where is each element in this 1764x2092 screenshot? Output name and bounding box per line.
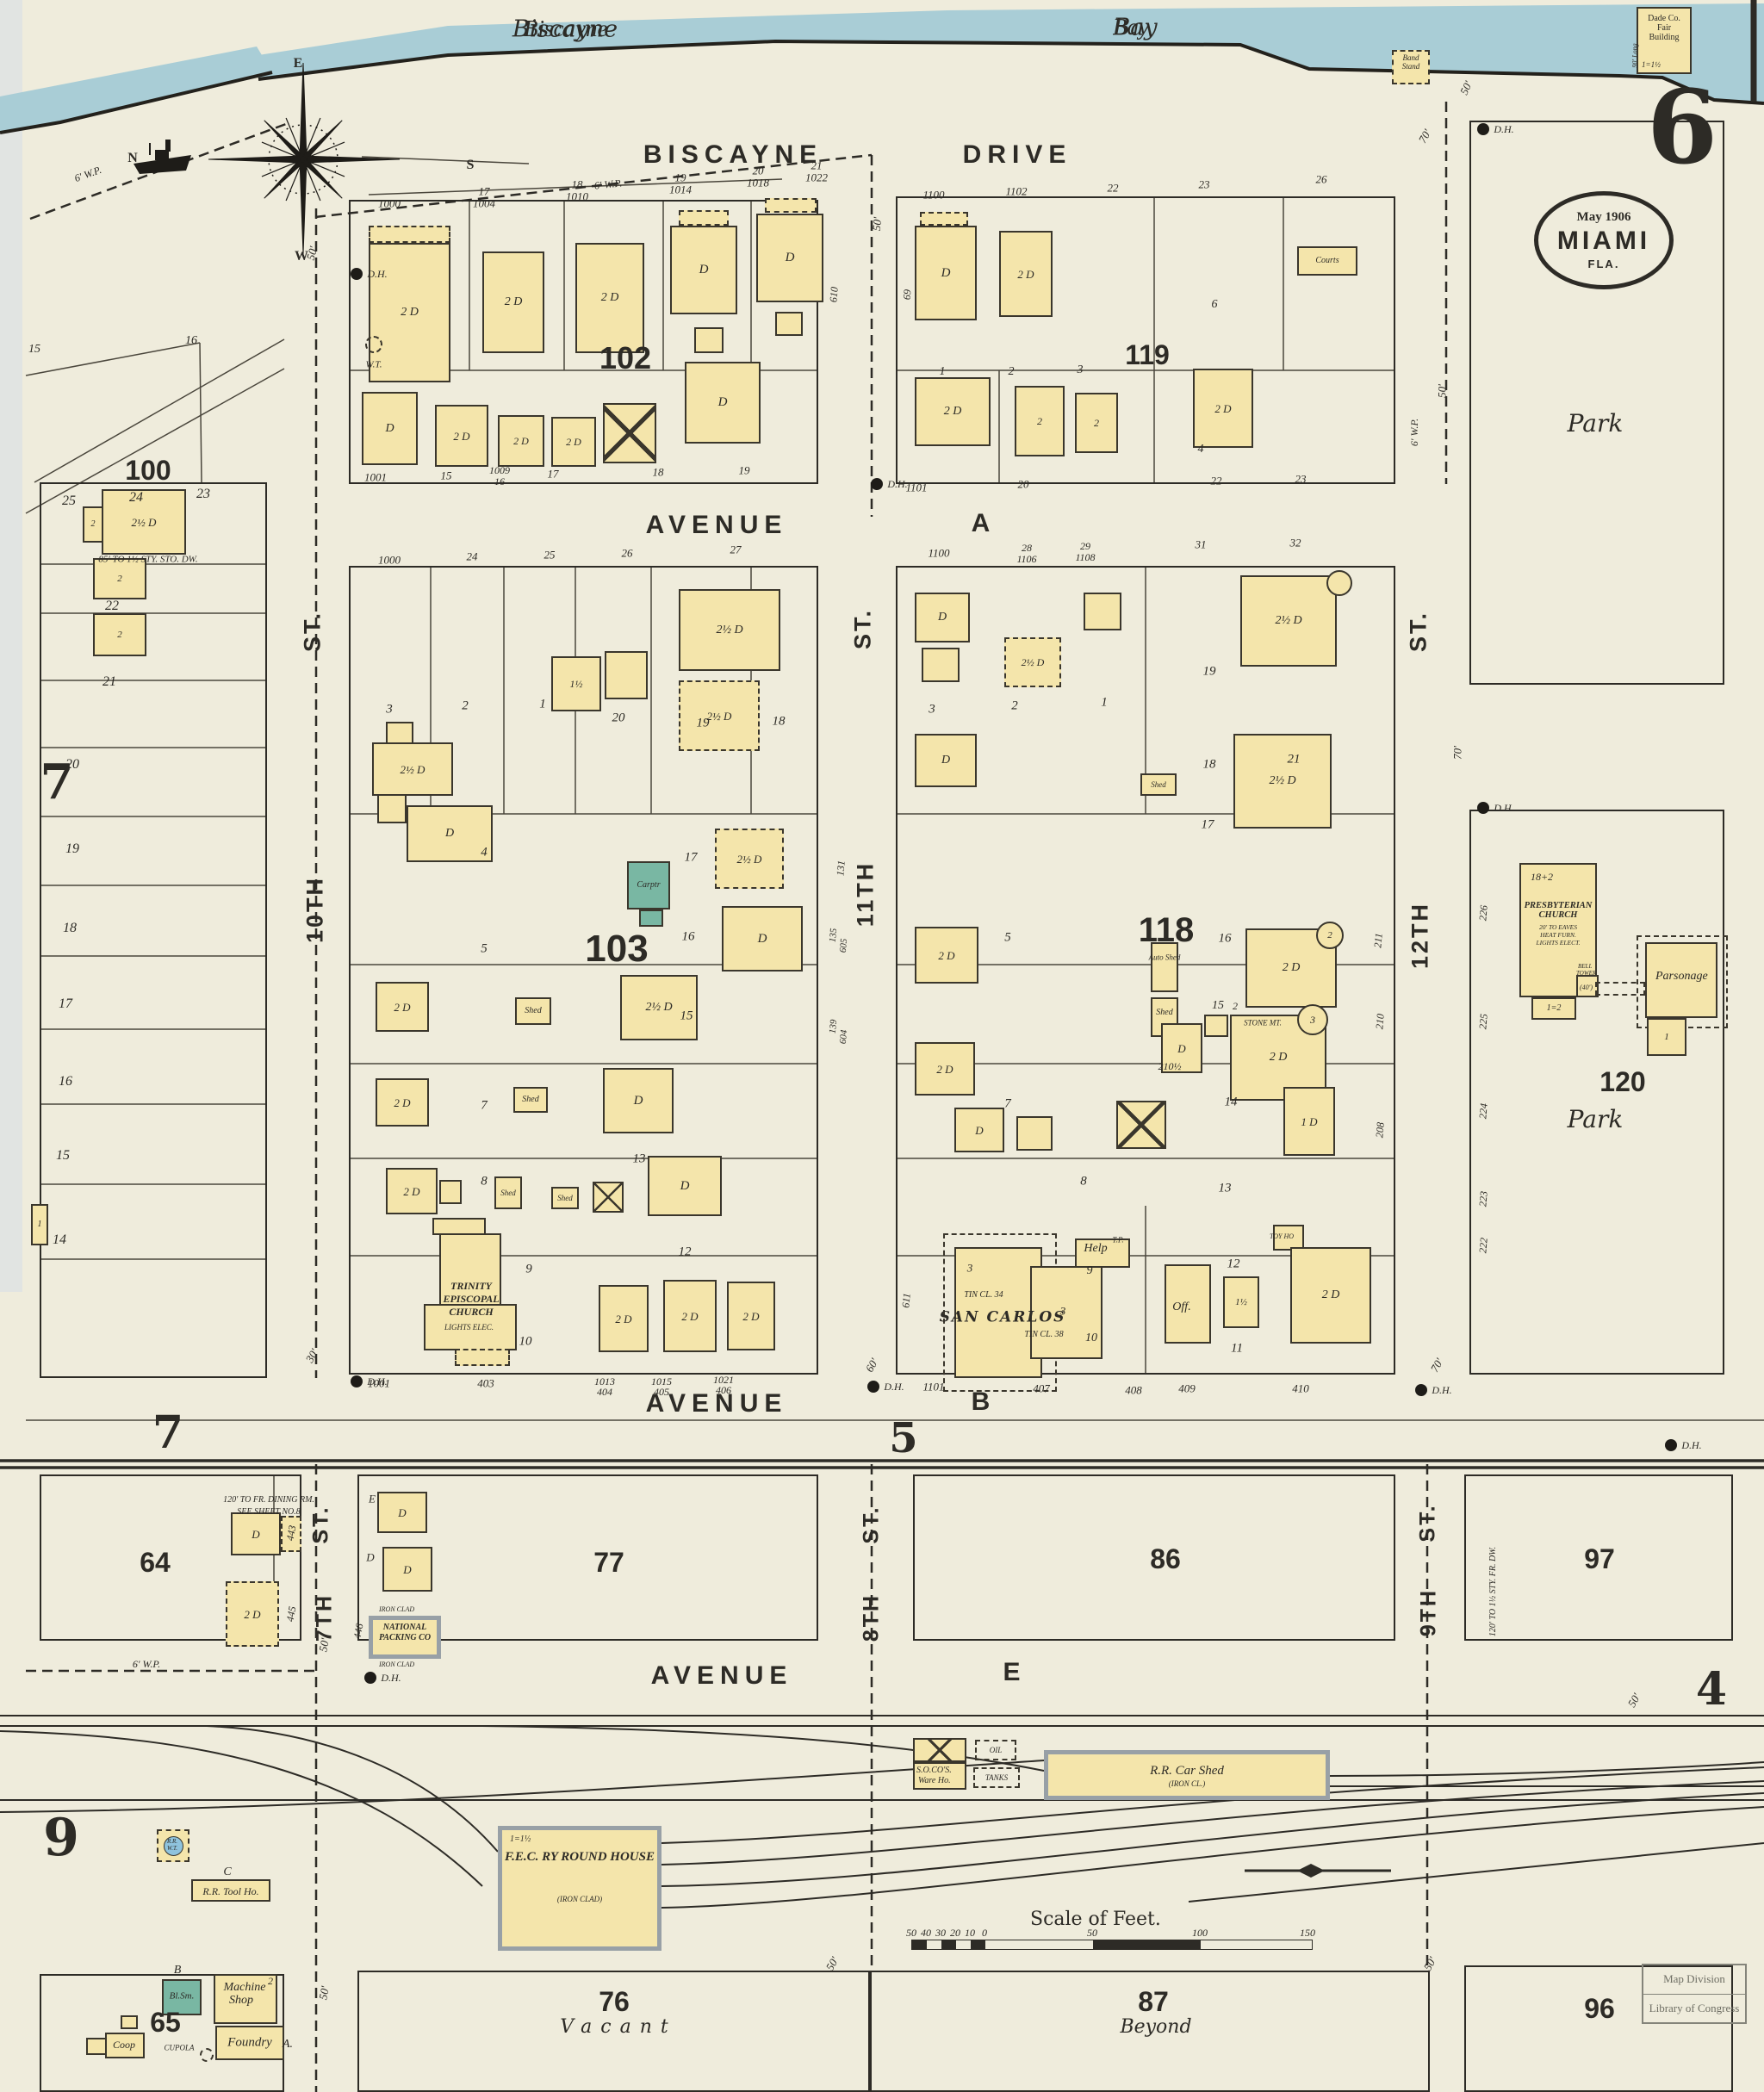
map-label: 15: [441, 470, 452, 481]
building: D: [722, 906, 803, 972]
building: [639, 909, 663, 927]
building: 2½ D: [1233, 734, 1332, 829]
trinity-lights-note: LIGHTS ELEC.: [444, 1323, 494, 1332]
map-label: 70': [1452, 746, 1463, 760]
building: Shed: [1140, 773, 1177, 796]
map-label: W.T.: [366, 361, 382, 370]
building-label: Carptr: [637, 881, 660, 890]
hydrant-marker: [351, 268, 363, 280]
building-label: 2½ D: [132, 517, 157, 528]
building: [200, 2048, 214, 2062]
map-label: 10TH: [304, 876, 327, 943]
map-label: 7: [1004, 1098, 1011, 1111]
building-label: 2½ D: [716, 624, 742, 636]
building-label: 2 D: [1270, 1052, 1288, 1064]
map-label: 12: [679, 1246, 692, 1259]
presbyterian-church-label: PRESBYTERIAN CHURCH 20' TO EAVES HEAT FU…: [1519, 901, 1597, 947]
map-label: 20: [612, 712, 625, 725]
round-house-label: F.E.C. RY ROUND HOUSE: [502, 1850, 657, 1865]
building: Shed: [551, 1187, 579, 1209]
map-label: 7TH: [314, 1593, 336, 1642]
map-label: 26: [1316, 174, 1327, 185]
map-label: 23: [1295, 474, 1307, 485]
building-label: 1: [1664, 1033, 1669, 1042]
map-label: 69: [901, 289, 912, 300]
building: D: [915, 734, 977, 787]
building: Carptr: [627, 861, 670, 909]
fair-building-label: Dade Co. Fair Building: [1637, 14, 1692, 42]
map-label: 12TH: [1409, 902, 1432, 969]
building: 2 D: [376, 1078, 429, 1127]
map-label: 20: [753, 165, 764, 177]
round-house-stories: 1=1½: [510, 1834, 531, 1844]
building-label: 2½ D: [1022, 657, 1045, 667]
building-label: 2 D: [1283, 962, 1301, 974]
map-label: TIN CL. 34: [964, 1291, 1003, 1300]
building: 2: [1075, 393, 1118, 453]
map-label: 604: [839, 1029, 849, 1044]
map-label: 25: [544, 549, 556, 561]
map-label: 1106: [1016, 554, 1036, 564]
map-label: 19: [65, 842, 79, 856]
scale-segment: [927, 1940, 941, 1949]
map-label: 605: [839, 938, 849, 953]
map-label: 1000: [378, 555, 401, 566]
map-label: 20: [65, 758, 79, 772]
scale-segment: [971, 1940, 985, 1949]
building: D: [915, 593, 970, 642]
building: [593, 1182, 624, 1213]
scale-segment: [956, 1940, 971, 1949]
map-label: ST.: [301, 611, 325, 652]
building: 2½ D: [1004, 637, 1061, 687]
map-label: 445: [285, 1605, 298, 1623]
building: 2 D: [999, 231, 1053, 317]
building: D: [915, 226, 977, 320]
map-label: 12: [1227, 1258, 1240, 1271]
map-label: 14: [53, 1233, 66, 1247]
track-crossing-icon: [1297, 1864, 1325, 1878]
building: [922, 648, 960, 682]
map-label: 5: [1004, 932, 1011, 945]
building: [455, 1349, 510, 1366]
map-label: AVENUE: [651, 1663, 793, 1689]
map-label: 50': [871, 217, 883, 232]
map-label: 3: [929, 704, 935, 717]
map-label: 22: [105, 599, 119, 613]
building-label: 1: [38, 1220, 42, 1229]
map-label: 5: [481, 943, 488, 956]
map-label: 87: [1138, 1988, 1169, 2015]
map-label: 25: [62, 494, 76, 508]
map-label: 17: [685, 852, 698, 865]
building: 2½ D: [679, 589, 780, 671]
map-label: 410: [1292, 1383, 1309, 1394]
map-label: E: [294, 57, 303, 71]
building-label: 2 D: [566, 437, 581, 447]
map-label: 7: [481, 1100, 488, 1113]
oval-city: MIAMI: [1557, 227, 1650, 256]
building-label: 2 D: [401, 307, 419, 319]
map-label: 50': [317, 1637, 331, 1653]
map-label: 610: [828, 287, 840, 303]
building: D: [407, 805, 493, 862]
map-label: 3: [967, 1263, 973, 1274]
packing-label-1: NATIONAL: [369, 1623, 441, 1632]
map-label: B: [174, 1965, 182, 1977]
building-label: 2 D: [403, 1186, 419, 1197]
building: [498, 1826, 661, 1951]
map-label: 17: [1202, 819, 1214, 832]
map-label: 225: [1477, 1014, 1489, 1030]
car-shed-material: (IRON CL.): [1044, 1779, 1330, 1788]
building-label: 3: [1310, 1015, 1315, 1025]
map-label: 24: [467, 551, 478, 562]
map-label: 16: [494, 476, 505, 487]
building-label: 1½: [1235, 1298, 1247, 1307]
building: [920, 212, 968, 226]
map-label: 19: [675, 172, 686, 183]
fair-building-length: 90' Long: [1631, 43, 1639, 67]
building: [694, 327, 724, 353]
packing-label-2: PACKING CO: [369, 1633, 441, 1642]
map-label: 210½: [1158, 1061, 1182, 1071]
hydrant-label: D.H.: [381, 1673, 401, 1683]
map-label: E: [369, 1493, 376, 1505]
map-label: 18: [63, 922, 77, 935]
map-label: 50': [317, 1985, 331, 2001]
hydrant-label: D.H.: [367, 269, 387, 279]
map-label: 21: [1288, 754, 1301, 767]
map-label: Off.: [1172, 1301, 1190, 1313]
building: 1=2: [1531, 997, 1576, 1020]
building: [1326, 570, 1352, 596]
map-label: 6: [1212, 299, 1218, 311]
map-label: 1102: [1005, 186, 1027, 197]
map-label: 31: [1196, 539, 1207, 550]
map-label: 4: [1198, 444, 1204, 456]
building: 1: [31, 1204, 48, 1245]
building-label: 2 D: [505, 296, 523, 308]
building-label: 2: [117, 630, 122, 640]
map-label: 77: [593, 1549, 624, 1576]
building-label: D: [634, 1095, 643, 1108]
map-label: ST.: [852, 608, 875, 649]
building-label: 2½ D: [1269, 775, 1295, 787]
building: Shed: [515, 997, 551, 1025]
map-label: Help: [1084, 1243, 1107, 1255]
map-label: 10: [1085, 1332, 1097, 1344]
map-label: 2: [462, 700, 469, 713]
building-label: 2½ D: [1275, 615, 1301, 627]
scale-segment: [985, 1940, 1093, 1949]
map-label: 15: [1212, 1000, 1224, 1012]
map-label: CUPOLA: [164, 2045, 194, 2052]
map-label: TIN CL. 38: [1024, 1331, 1063, 1339]
map-label: 1018: [747, 177, 769, 189]
map-label: 14: [1225, 1096, 1238, 1109]
building-label: D: [1177, 1043, 1185, 1054]
building: [386, 722, 413, 744]
map-label: 1: [539, 698, 546, 711]
map-label: 406: [716, 1385, 731, 1395]
building-label: 2 D: [1322, 1289, 1340, 1301]
building-label: 1½: [570, 679, 583, 689]
map-label: 8: [1080, 1176, 1087, 1189]
map-label: 86: [1150, 1545, 1181, 1573]
building: 2 D: [1290, 1247, 1371, 1344]
map-label: 9: [525, 1263, 532, 1276]
map-label: 18+2: [1531, 872, 1553, 882]
map-label: 9TH: [1419, 1588, 1440, 1636]
building: 2 D: [915, 377, 991, 446]
map-label: 210: [1374, 1014, 1386, 1030]
library-stamp: Map Division Library of Congress: [1642, 1964, 1747, 2024]
sheet-number: 6: [1647, 67, 1717, 187]
scale-segment: [1201, 1940, 1308, 1949]
building: 2½ D: [1240, 575, 1337, 667]
building-label: 2 D: [681, 1311, 698, 1322]
building-label: 2 D: [1214, 403, 1231, 414]
hydrant-label: D.H.: [1432, 1385, 1451, 1395]
map-label: Auto Shed: [1149, 954, 1181, 962]
building: [377, 794, 407, 823]
scale-tick: 10: [965, 1927, 975, 1938]
map-label: 16: [59, 1075, 72, 1089]
map-label: 16: [185, 335, 197, 347]
map-label: 1001: [364, 472, 387, 483]
map-label: 3: [386, 704, 393, 717]
map-label: 2: [268, 1976, 273, 1986]
map-label: 120' TO 1½ STY. FR. DW.: [1489, 1547, 1498, 1636]
map-label: 1004: [473, 198, 495, 209]
oval-state: FLA.: [1588, 258, 1620, 270]
building: D: [685, 362, 761, 444]
map-label: 3: [1078, 364, 1084, 376]
ware-house-label-2: Ware Ho.: [918, 1776, 951, 1785]
building: 2: [93, 613, 146, 656]
map-label: Bl.Sm.: [170, 1992, 195, 2002]
map-label: 1: [940, 366, 946, 378]
map-label: 6' W.P.: [133, 1659, 160, 1669]
map-label: 226: [1477, 905, 1489, 922]
map-label: A: [972, 511, 997, 537]
building: D: [954, 1108, 1004, 1152]
building-label: 2½ D: [401, 764, 425, 775]
map-label: 16: [682, 931, 695, 944]
building: 2 D: [226, 1581, 279, 1647]
map-label: DRIVE: [963, 142, 1072, 168]
building-label: Courts: [1315, 257, 1339, 265]
map-label: ST.: [311, 1505, 332, 1543]
map-label: 131: [835, 860, 847, 877]
building: 2½ D: [715, 829, 784, 889]
building: 2: [83, 506, 103, 543]
map-label: 19: [697, 717, 710, 730]
map-label: 446: [352, 1623, 365, 1640]
scale-tick: 150: [1300, 1927, 1315, 1938]
building-label: D: [385, 423, 394, 435]
map-label: 19: [1203, 666, 1216, 679]
building-label: D: [941, 754, 950, 767]
scale-tick: 20: [950, 1927, 960, 1938]
map-label: 15: [56, 1149, 70, 1163]
map-label: Foundry: [227, 2037, 272, 2050]
building-label: 2 D: [944, 406, 962, 418]
bell-tower-label-2: TOWER: [1576, 970, 1596, 977]
round-house-material: (IRON CLAD): [502, 1895, 657, 1903]
building: 2½ D: [620, 975, 698, 1040]
rr-tank-label-2: W.T.: [167, 1845, 177, 1852]
building: D: [648, 1156, 722, 1216]
map-label: ST.: [1407, 611, 1431, 652]
map-label: 1101: [905, 482, 927, 494]
ware-house-label-1: S.O.CO'S.: [916, 1766, 952, 1775]
building-label: 2: [1037, 416, 1042, 426]
building: 1½: [551, 656, 601, 711]
building: 2 D: [376, 982, 429, 1032]
building-label: 2 D: [938, 950, 954, 961]
map-label: 2: [1009, 366, 1015, 378]
map-label: 1010: [566, 191, 588, 202]
map-label: 611: [900, 1293, 911, 1308]
map-label: 2: [1011, 700, 1018, 713]
map-label: 64: [140, 1549, 171, 1576]
map-label: AVENUE: [646, 512, 788, 538]
water-label-bay: Bay: [1113, 16, 1149, 39]
map-label: ST.: [861, 1505, 883, 1543]
scale-tick: 30: [935, 1927, 946, 1938]
map-label: 223: [1477, 1191, 1489, 1207]
map-label: 1100: [928, 548, 949, 559]
hydrant-marker: [867, 1381, 879, 1393]
building: 2: [1015, 386, 1065, 456]
building: [1151, 942, 1178, 992]
map-label: 102: [599, 343, 651, 374]
building-label: 2: [1094, 418, 1099, 428]
map-label: S: [467, 158, 475, 172]
hydrant-marker: [1415, 1384, 1427, 1396]
building-label: Shed: [1151, 781, 1166, 789]
map-label: 17: [59, 997, 72, 1011]
building: D: [670, 226, 737, 314]
map-label: 27: [730, 544, 742, 556]
map-label: 4: [481, 847, 488, 860]
building: [86, 2038, 107, 2055]
map-label: 8: [481, 1176, 488, 1189]
map-label: 21: [811, 160, 823, 171]
map-label: 1101: [922, 1381, 944, 1393]
building-label: D: [680, 1180, 690, 1193]
map-label: 11TH: [854, 861, 878, 928]
parsonage-label: Parsonage: [1655, 970, 1708, 984]
building-label: 2: [117, 574, 122, 584]
building-label: 2: [91, 520, 96, 529]
building-label: 2 D: [936, 1064, 953, 1075]
map-label: 10: [519, 1336, 532, 1349]
map-label: SAN CARLOS: [940, 1311, 1066, 1325]
map-label: 9: [43, 1812, 79, 1864]
map-label: SEE SHEET NO.8: [237, 1508, 300, 1517]
map-label: 85' TO 1½ STY. STO. DW.: [98, 556, 197, 565]
map-label: 224: [1477, 1103, 1489, 1120]
building: 3: [1297, 1004, 1328, 1035]
map-label: 18: [572, 179, 583, 190]
map-label: 2: [1233, 1001, 1238, 1011]
map-label: STONE MT.: [1244, 1020, 1282, 1027]
map-label: 22: [1211, 475, 1222, 487]
map-label: 118: [1139, 913, 1195, 947]
building-label: 2½ D: [737, 854, 762, 865]
map-label: 18: [773, 716, 786, 729]
hydrant-marker: [351, 1375, 363, 1387]
map-label: 29: [1080, 541, 1090, 551]
building: D: [382, 1547, 432, 1592]
map-label: 13: [633, 1153, 646, 1166]
building-label: D: [252, 1529, 259, 1540]
map-label: 65: [150, 2008, 181, 2036]
building-label: Shed: [522, 1096, 538, 1104]
rr-tank-label-1: R.R.: [167, 1838, 177, 1845]
hydrant-marker: [1665, 1439, 1677, 1451]
map-label: 16: [1219, 933, 1232, 946]
map-label: 32: [1290, 537, 1301, 549]
map-label: 15: [680, 1010, 693, 1023]
building: [775, 312, 803, 336]
building-label: D: [938, 611, 947, 624]
building: 2 D: [663, 1280, 717, 1352]
building: 2 D: [386, 1168, 438, 1214]
packing-iron-bottom: IRON CLAD: [379, 1661, 414, 1668]
building-label: 2 D: [601, 292, 619, 304]
map-label: 1100: [922, 189, 944, 201]
building-label: D: [699, 264, 709, 276]
building: 2 D: [575, 243, 644, 353]
hydrant-marker: [1477, 123, 1489, 135]
map-label: 17: [479, 186, 490, 197]
building: [1084, 593, 1121, 630]
building: 2 D: [915, 1042, 975, 1096]
building: [439, 1180, 462, 1204]
building-label: OIL: [990, 1747, 1003, 1754]
building: D: [377, 1492, 427, 1533]
hydrant-label: D.H.: [1494, 124, 1513, 134]
map-label: Park: [1568, 412, 1624, 436]
building: [432, 1218, 486, 1235]
map-label: Park: [1568, 1108, 1624, 1132]
map-label: 222: [1477, 1238, 1489, 1254]
stamp-line-2: Library of Congress: [1643, 1994, 1745, 2023]
hydrant-label: D.H.: [884, 1381, 904, 1392]
map-label: 23: [196, 487, 210, 501]
map-label: T.P.: [1112, 1237, 1123, 1245]
scale-tick: 50: [906, 1927, 916, 1938]
map-label: 28: [1022, 543, 1032, 553]
map-label: 97: [1584, 1545, 1615, 1573]
building-label: 2: [1327, 931, 1332, 940]
map-label: 1: [1101, 697, 1108, 710]
map-label: 1000: [378, 198, 401, 209]
scale-tick: 100: [1192, 1927, 1208, 1938]
sanborn-map-sheet: 2 D2 D2 DDDD2 D2 D2 DDD2 DCourts2 D222 D…: [0, 0, 1764, 2092]
building-label: 1=2: [1547, 1004, 1562, 1013]
packing-iron-top: IRON CLAD: [379, 1605, 414, 1613]
map-label: 76: [599, 1988, 630, 2015]
building-label: D: [758, 933, 767, 946]
hydrant-marker: [364, 1672, 376, 1684]
building: [1204, 1015, 1228, 1037]
map-label: 23: [1199, 179, 1210, 190]
